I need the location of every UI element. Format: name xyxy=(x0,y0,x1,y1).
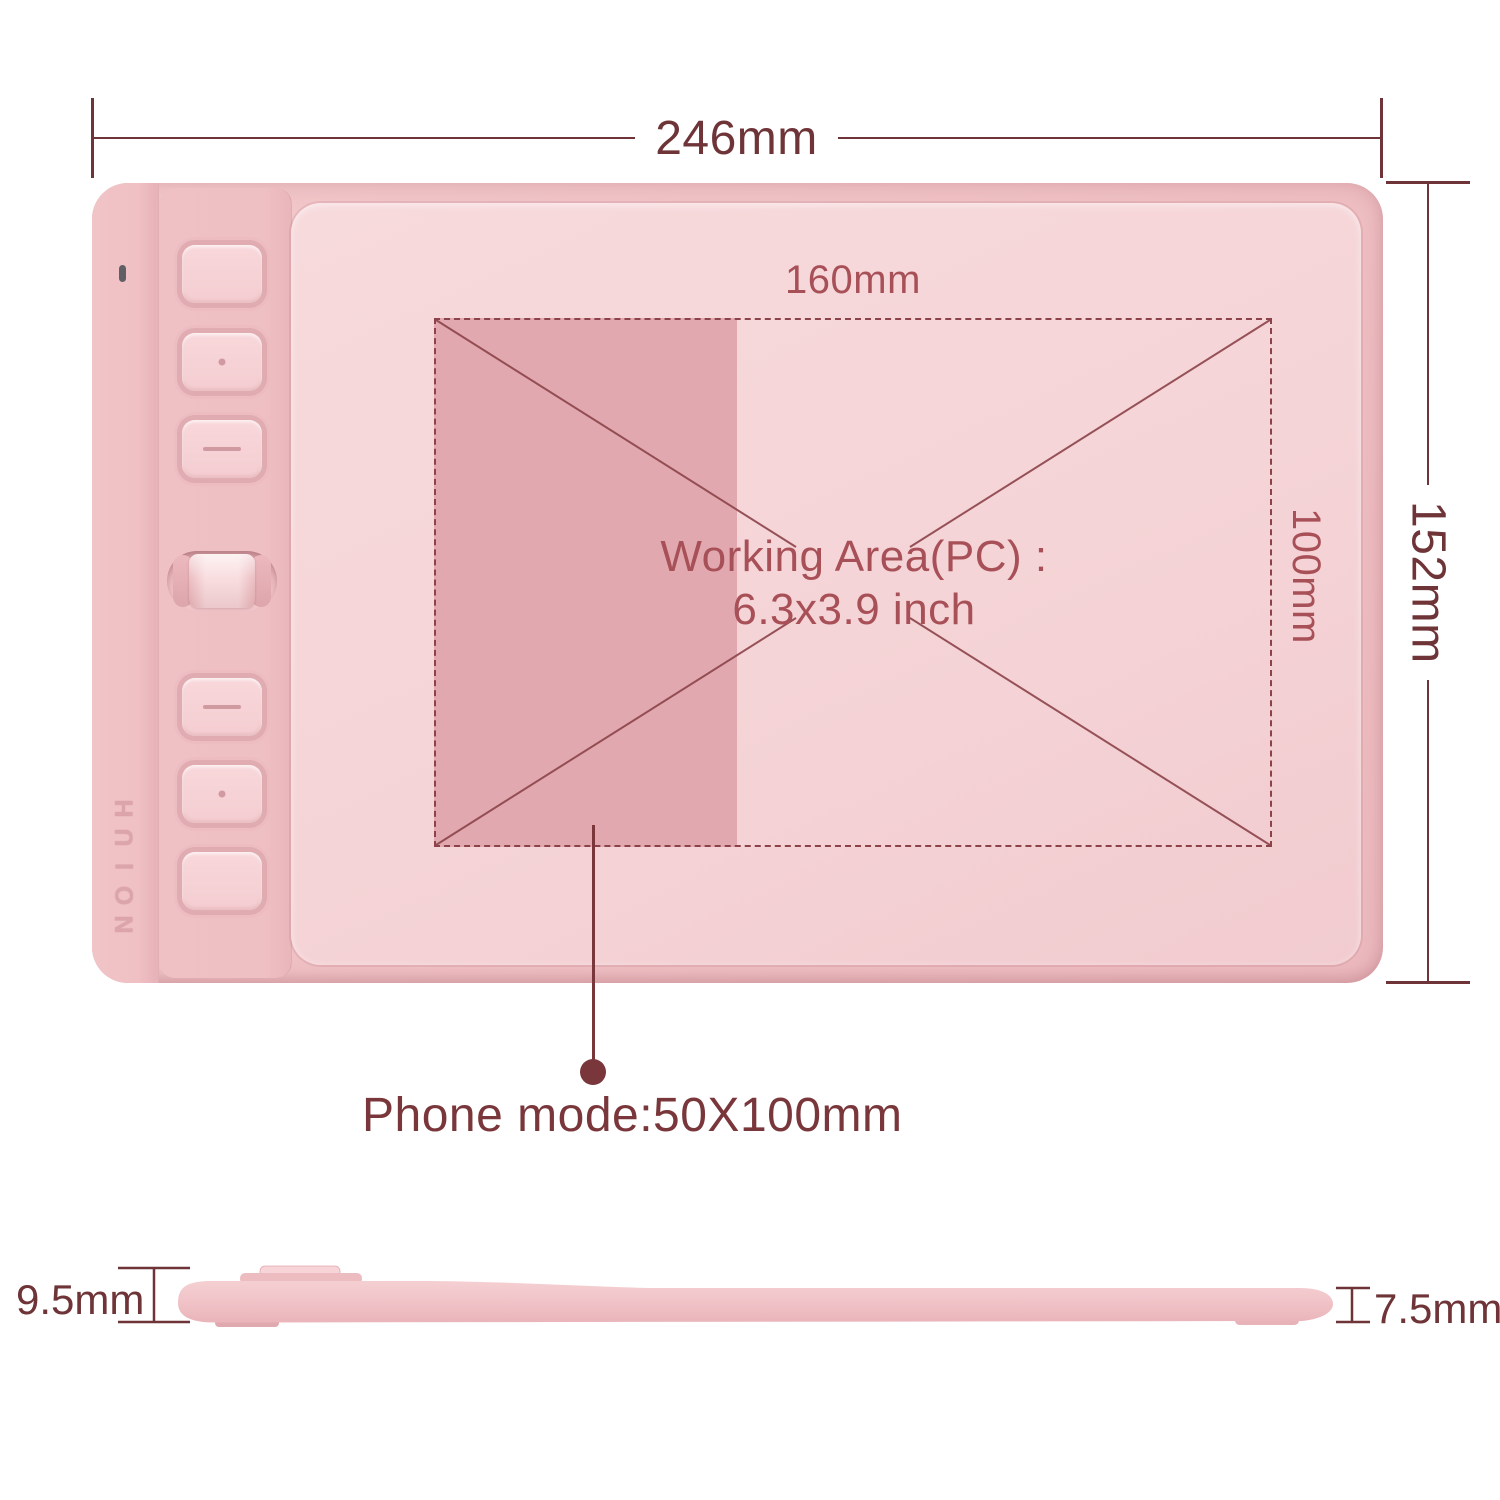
express-key-1 xyxy=(182,245,262,303)
side-body xyxy=(178,1281,1333,1323)
height-dim-label: 152mm xyxy=(1401,501,1456,664)
express-key-4 xyxy=(182,678,262,736)
status-led xyxy=(119,265,126,282)
phone-mode-label: Phone mode:50X100mm xyxy=(362,1088,903,1143)
huion-logo-letter: U xyxy=(112,827,138,846)
right-thickness-label: 7.5mm xyxy=(1374,1285,1500,1333)
huion-logo-letter: H xyxy=(112,798,138,817)
working-area-caption-line2: 6.3x3.9 inch xyxy=(534,583,1174,636)
huion-logo-letter: I xyxy=(112,862,138,870)
express-key-2 xyxy=(182,333,262,391)
width-dim-label: 246mm xyxy=(655,111,818,166)
phone-mode-pointer-line xyxy=(592,825,595,1061)
huion-logo: HUION xyxy=(108,795,142,937)
tablet-side-view xyxy=(0,1240,1500,1370)
width-dimension: 246mm xyxy=(92,108,1381,168)
left-thickness-label: 9.5mm xyxy=(16,1276,144,1324)
express-key-6 xyxy=(182,852,262,910)
express-key-5 xyxy=(182,765,262,823)
huion-logo-letter: O xyxy=(112,885,138,905)
express-key-3 xyxy=(182,420,262,478)
roller-barrel xyxy=(189,554,255,608)
height-dimension: 152mm xyxy=(1404,183,1452,982)
height-dim-line-bottom xyxy=(1427,680,1430,982)
phone-mode-pointer-dot xyxy=(580,1059,606,1085)
scroll-roller xyxy=(167,551,277,611)
width-dim-line-right xyxy=(838,137,1381,140)
working-area-width-label: 160mm xyxy=(434,258,1272,303)
working-area-caption: Working Area(PC) : 6.3x3.9 inch xyxy=(534,530,1174,636)
working-area-height-label: 100mm xyxy=(1283,508,1328,644)
page: 246mm 152mm HUION 160mm xyxy=(0,0,1500,1500)
height-dim-line-top xyxy=(1427,183,1430,485)
right-thickness-bracket xyxy=(1336,1288,1370,1322)
working-area-caption-line1: Working Area(PC) : xyxy=(534,530,1174,583)
width-dim-line-left xyxy=(92,137,635,140)
huion-logo-letter: N xyxy=(112,914,138,933)
